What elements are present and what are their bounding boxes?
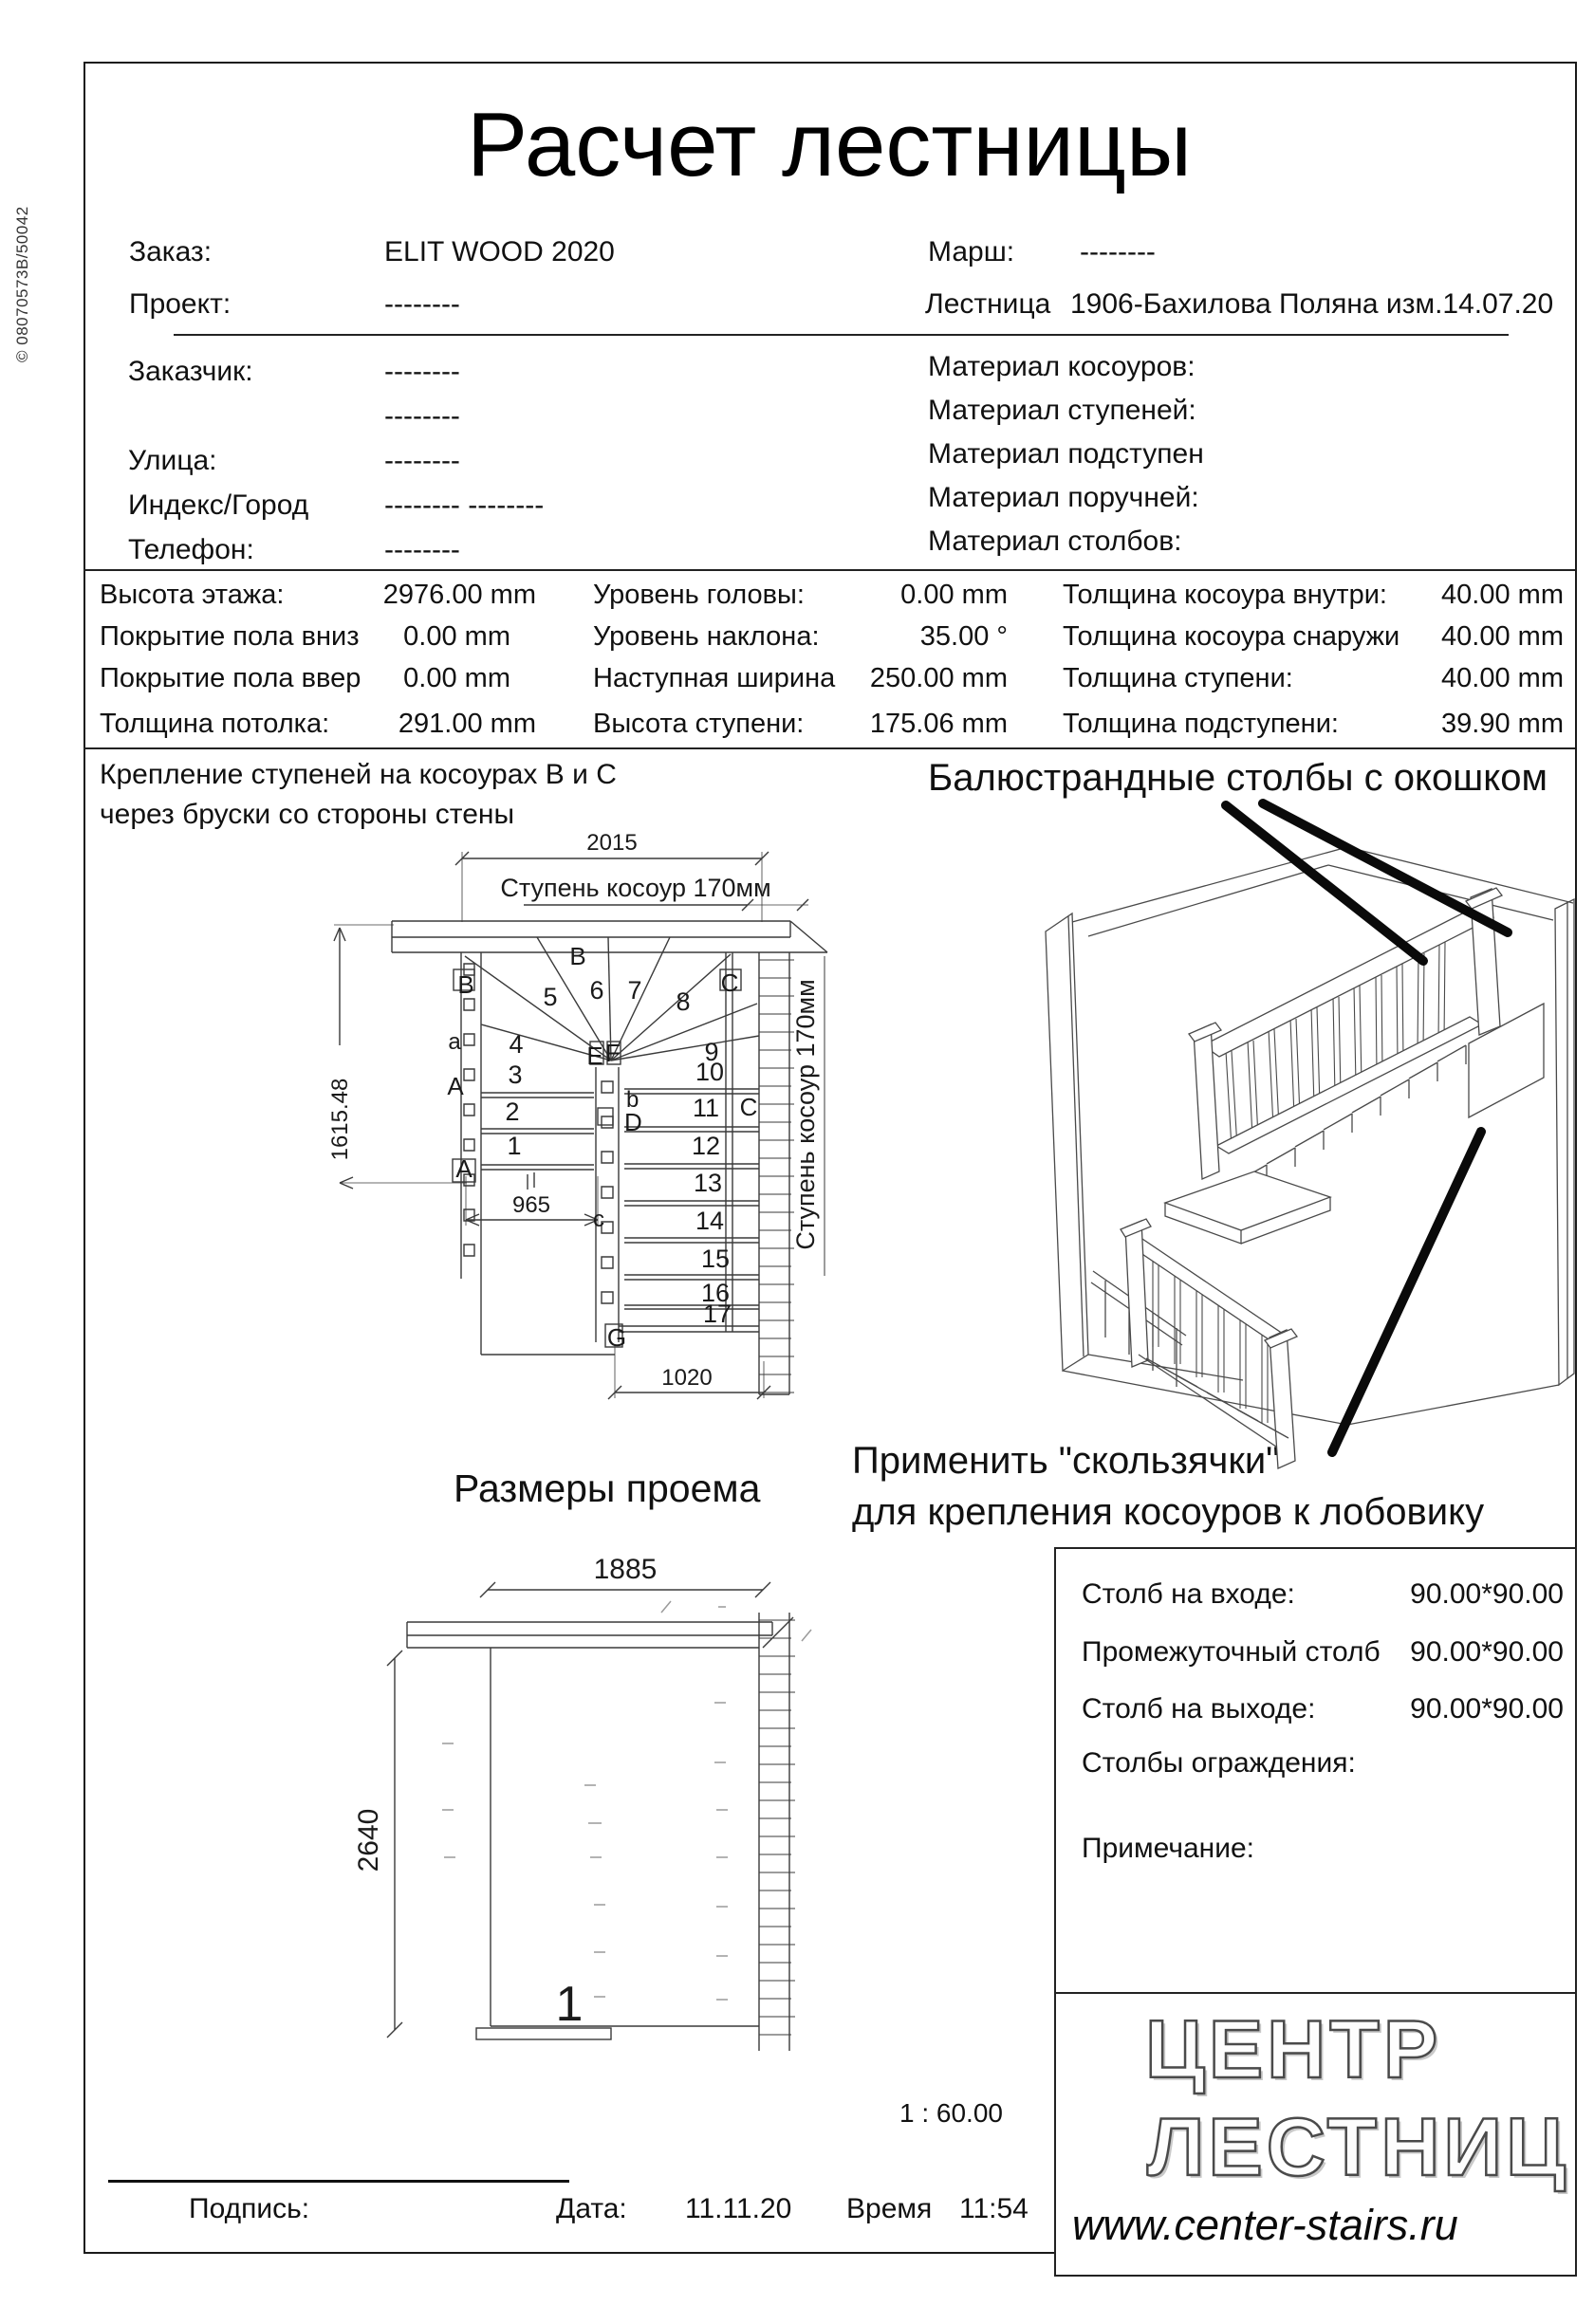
client-value: -------- — [384, 356, 460, 388]
param-value: 0.00 mm — [342, 663, 510, 694]
order-label: Заказ: — [129, 236, 212, 268]
param-value: 39.90 mm — [1423, 709, 1564, 740]
march-value: -------- — [1080, 236, 1156, 268]
plan-flight1-steps — [481, 1093, 594, 1170]
material-handrails: Материал поручней: — [928, 482, 1199, 514]
plan-stringer-label-v: Ступень косоур 170мм — [791, 979, 820, 1249]
project-value: -------- — [384, 288, 460, 321]
logo-divider — [1054, 1992, 1575, 1994]
logo-url: www.center-stairs.ru — [1072, 2201, 1458, 2250]
signature-line — [108, 2180, 569, 2183]
param-label: Наступная ширина — [593, 663, 870, 694]
param-label: Высота этажа: — [100, 580, 370, 611]
param-value: 250.00 mm — [835, 663, 1008, 694]
material-risers: Материал подступен — [928, 438, 1204, 470]
svg-text:B: B — [457, 970, 473, 999]
client-value-2: -------- — [384, 400, 460, 433]
svg-text:C: C — [740, 1093, 758, 1121]
svg-text:5: 5 — [543, 983, 557, 1011]
svg-text:11: 11 — [693, 1094, 719, 1122]
param-label: Толщина подступени: — [1063, 709, 1435, 740]
note-label: Примечание: — [1082, 1833, 1461, 1865]
param-label: Толщина косоура внутри: — [1063, 580, 1435, 611]
param-value: 40.00 mm — [1423, 621, 1564, 653]
post-entry-label: Столб на входе: — [1082, 1578, 1404, 1611]
svg-text:8: 8 — [676, 987, 690, 1016]
lower-steps — [1139, 1355, 1288, 1447]
plan-landing — [392, 921, 827, 952]
plan-stringer-label-h: Ступень косоур 170мм — [500, 874, 770, 902]
svg-text:13: 13 — [694, 1169, 722, 1197]
param-label: Уровень головы: — [593, 580, 873, 611]
plan-dim-mid-text: 965 — [512, 1192, 550, 1218]
plan-dim-left-text: 1615.48 — [327, 1079, 353, 1161]
drawing-scale: 1 : 60.00 — [899, 2098, 1003, 2129]
note-slider-2: для крепления косоуров к лобовику — [852, 1491, 1484, 1534]
plan-dim-left — [334, 925, 467, 1189]
date-label: Дата: — [556, 2193, 627, 2225]
opening-faint-marks — [442, 1601, 811, 2000]
time-label: Время — [846, 2193, 932, 2225]
param-label: Толщина потолка: — [100, 709, 370, 740]
plan-wall-strip — [759, 952, 794, 1394]
stair-3d-view — [1039, 821, 1577, 1466]
post-middle-label: Промежуточный столб — [1082, 1636, 1404, 1669]
stair-value: 1906-Бахилова Поляна изм.14.07.20 — [1070, 288, 1571, 321]
svg-text:1: 1 — [507, 1132, 521, 1160]
march-label: Марш: — [928, 236, 1014, 268]
svg-text:7: 7 — [627, 976, 641, 1005]
svg-text:G: G — [607, 1323, 626, 1352]
document-code: © 08070573B/50042 — [13, 206, 32, 362]
page-title: Расчет лестницы — [83, 93, 1575, 197]
param-label: Толщина косоура снаружи — [1063, 621, 1435, 653]
param-value: 175.06 mm — [835, 709, 1008, 740]
params-top-line — [83, 569, 1575, 571]
post-exit-value: 90.00*90.00 — [1395, 1693, 1564, 1725]
post-fence-label: Столбы ограждения: — [1082, 1747, 1461, 1780]
stair-label: Лестница — [925, 288, 1050, 321]
plan-dim-bottom-text: 1020 — [661, 1365, 712, 1391]
opening-drawing: 1885 2640 1 — [313, 1546, 844, 2163]
opening-dim-height-text: 2640 — [353, 1809, 384, 1872]
param-label: Уровень наклона: — [593, 621, 873, 653]
param-value: 40.00 mm — [1423, 580, 1564, 611]
material-stringers: Материал косоуров: — [928, 351, 1195, 383]
param-value: 40.00 mm — [1423, 663, 1564, 694]
project-label: Проект: — [129, 288, 231, 321]
svg-text:A: A — [455, 1154, 473, 1183]
signature-label: Подпись: — [189, 2193, 309, 2225]
note-fixing-1: Крепление ступеней на косоурах B и C — [100, 759, 617, 791]
phone-value: -------- — [384, 534, 460, 566]
logo-line2: ЛЕСТНИЦ — [1147, 2101, 1569, 2195]
note-baluster: Балюстрандные столбы с окошком — [928, 757, 1573, 800]
city-value: -------- -------- — [384, 489, 544, 522]
param-label: Покрытие пола ввер — [100, 663, 375, 694]
material-treads: Материал ступеней: — [928, 395, 1196, 427]
svg-text:c: c — [593, 1207, 604, 1232]
svg-text:4: 4 — [509, 1030, 523, 1059]
svg-text:B: B — [569, 942, 585, 970]
svg-text:F: F — [605, 1039, 621, 1067]
upper-balusters — [1226, 942, 1445, 1148]
params-bottom-line — [83, 747, 1575, 749]
param-value: 291.00 mm — [342, 709, 536, 740]
svg-text:C: C — [721, 968, 739, 997]
header-divider — [174, 334, 1509, 336]
param-value: 0.00 mm — [342, 621, 510, 653]
opening-floor-mark: 1 — [556, 1977, 584, 2032]
svg-text:E: E — [586, 1042, 602, 1070]
param-label: Толщина ступени: — [1063, 663, 1435, 694]
landing-platform — [1165, 1171, 1330, 1244]
stair-calculation-sheet: © 08070573B/50042 Расчет лестницы Заказ:… — [0, 0, 1594, 2324]
opening-dim-width-text: 1885 — [594, 1554, 658, 1585]
phone-label: Телефон: — [128, 534, 254, 566]
svg-text:10: 10 — [695, 1058, 724, 1086]
client-label: Заказчик: — [128, 356, 253, 388]
svg-text:15: 15 — [701, 1245, 730, 1273]
opening-outline — [476, 1648, 759, 2039]
svg-text:a: a — [448, 1029, 461, 1055]
time-value: 11:54 — [959, 2193, 1029, 2225]
stair-plan-drawing: 2015 Ступень косоур 170мм Ступень косоур… — [83, 811, 1054, 1456]
post-middle-value: 90.00*90.00 — [1395, 1636, 1564, 1669]
street-label: Улица: — [128, 445, 217, 477]
street-value: -------- — [384, 445, 460, 477]
plan-lower-outline — [481, 1279, 615, 1355]
param-value: 0.00 mm — [835, 580, 1008, 611]
svg-text:14: 14 — [695, 1207, 724, 1235]
param-label: Высота ступени: — [593, 709, 873, 740]
svg-text:2: 2 — [505, 1097, 519, 1126]
post-entry-value: 90.00*90.00 — [1395, 1578, 1564, 1611]
date-value: 11.11.20 — [685, 2193, 791, 2225]
param-value: 2976.00 mm — [342, 580, 536, 611]
param-value: 35.00 ° — [835, 621, 1008, 653]
opening-wall-strip — [759, 1613, 795, 2051]
opening-title: Размеры проема — [454, 1466, 760, 1511]
logo-line1: ЦЕНТР — [1145, 2003, 1441, 2097]
svg-text:12: 12 — [692, 1132, 720, 1160]
order-value: ELIT WOOD 2020 — [384, 236, 615, 268]
city-label: Индекс/Город — [128, 489, 308, 522]
svg-text:D: D — [624, 1108, 642, 1136]
svg-text:3: 3 — [508, 1061, 522, 1089]
opening-dim-height — [387, 1651, 402, 2038]
material-posts: Материал столбов: — [928, 526, 1181, 558]
opening-ceiling-band — [407, 1617, 793, 1648]
post-exit-label: Столб на выходе: — [1082, 1693, 1404, 1725]
lower-handrail — [1131, 1235, 1283, 1345]
svg-text:A: A — [447, 1072, 464, 1100]
svg-text:6: 6 — [589, 976, 603, 1005]
param-label: Покрытие пола вниз — [100, 621, 375, 653]
svg-text:17: 17 — [703, 1300, 732, 1328]
plan-middle-stringer — [590, 1042, 622, 1347]
plan-dim-top-text: 2015 — [586, 830, 637, 856]
